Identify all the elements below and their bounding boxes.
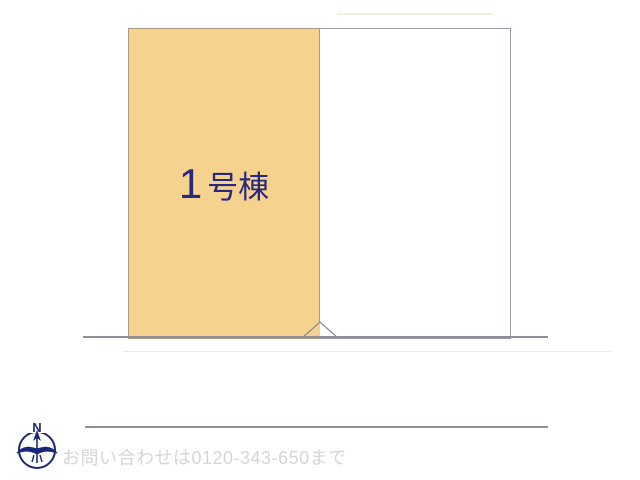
building-suffix: 号棟 <box>207 172 269 203</box>
building-number: 1 <box>179 163 202 205</box>
faint-guide-line-top <box>337 13 493 15</box>
site-plan-canvas: 1 号棟 N お問い合わせは0120-343-650まで <box>0 0 640 480</box>
compass-north-label: N <box>32 421 41 435</box>
road-edge-upper <box>83 336 548 338</box>
road-edge-lower <box>85 426 548 428</box>
faint-guide-line-mid <box>123 351 612 352</box>
compass-north-icon: N <box>13 421 61 473</box>
lot-building-1: 1 号棟 <box>128 28 320 339</box>
contact-info-text: お問い合わせは0120-343-650まで <box>62 444 347 470</box>
building-label: 1 号棟 <box>179 163 269 205</box>
lot-vacant <box>319 28 511 339</box>
